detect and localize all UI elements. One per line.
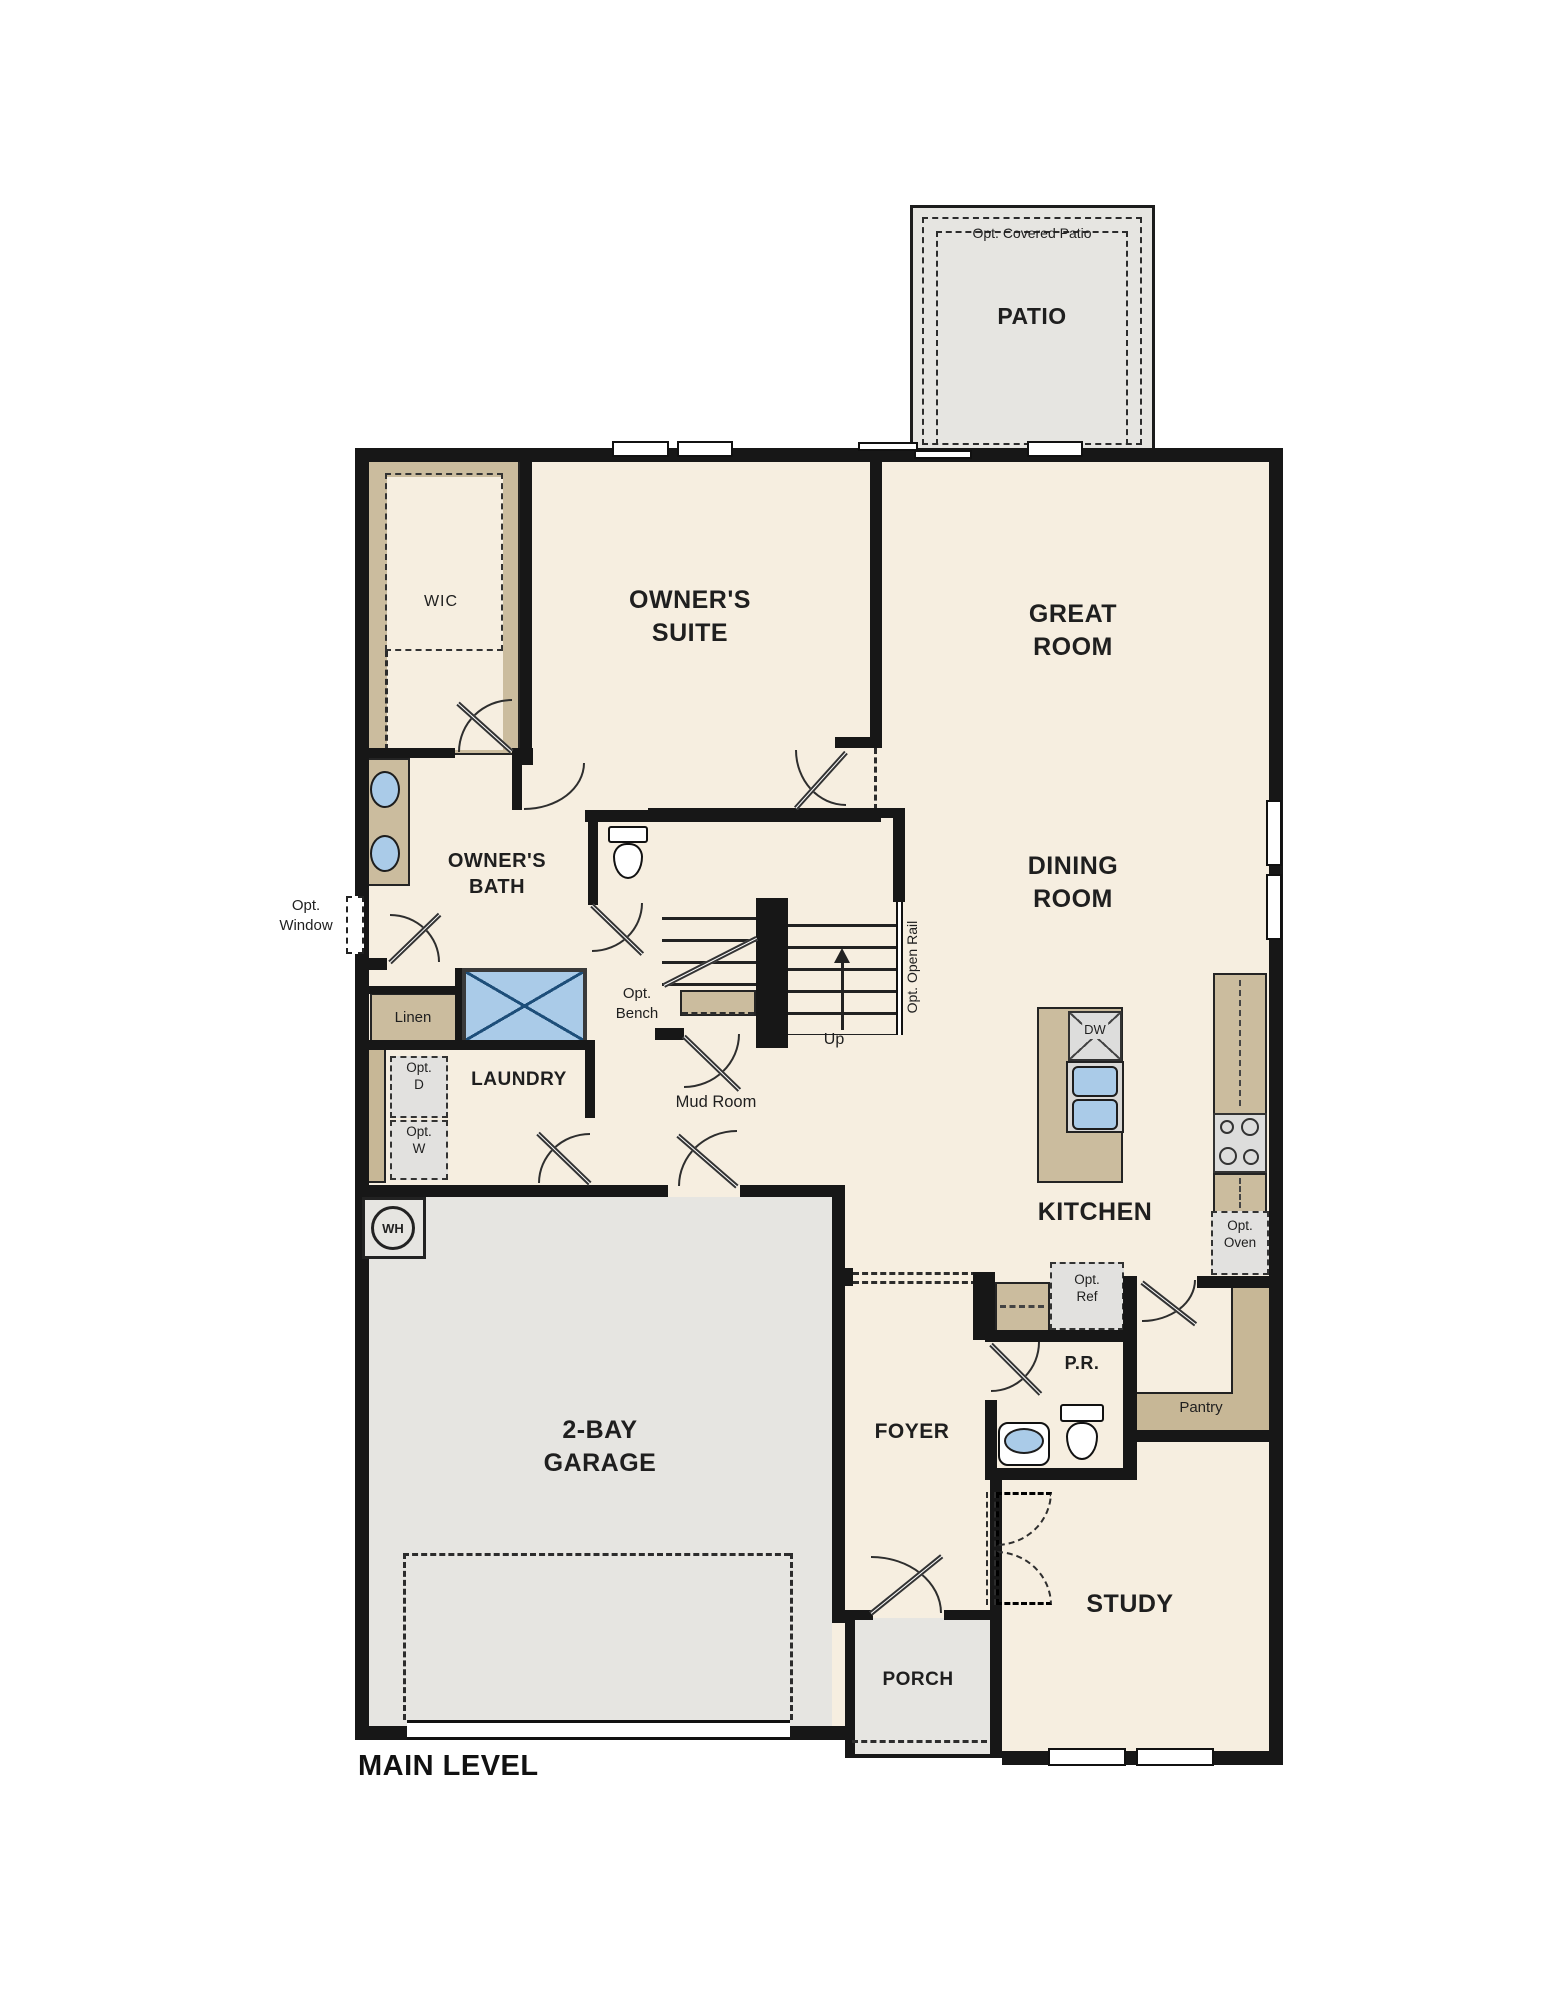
opt-dryer-label: Opt. D (406, 1060, 432, 1094)
dining-room-line1: DINING (1028, 852, 1119, 880)
wall (520, 455, 532, 755)
owners-bath-line1: OWNER'S (448, 850, 546, 872)
wall (1123, 1276, 1137, 1480)
stair-up-arrowhead (834, 948, 850, 963)
dw-label: DW (1082, 1022, 1108, 1039)
opt-w-line1: Opt. (406, 1124, 432, 1139)
pr-label: P.R. (1065, 1352, 1100, 1375)
owners-suite-label: OWNER'S SUITE (629, 584, 751, 649)
study-label: STUDY (1086, 1588, 1173, 1621)
porch-dashed-line (852, 1740, 987, 1743)
island-sink-icon (1072, 1099, 1118, 1130)
window (612, 441, 669, 457)
wic-label: WIC (424, 592, 458, 613)
opt-french-door-dashed (986, 1492, 988, 1605)
patio-dashed-outline-inner (936, 231, 1128, 445)
wall (756, 898, 788, 1048)
opt-washer-label: Opt. W (406, 1124, 432, 1158)
pantry-shelf (1231, 1288, 1269, 1394)
window (1136, 1748, 1214, 1766)
garage-door-track-dashed (403, 1553, 406, 1720)
opt-ref-line1: Opt. (1074, 1272, 1100, 1287)
wall (355, 448, 1283, 462)
laundry-label: LAUNDRY (471, 1068, 567, 1093)
wall (893, 808, 905, 902)
toilet-icon (608, 826, 648, 843)
opt-window-box (346, 896, 364, 954)
pantry-label: Pantry (1179, 1398, 1222, 1418)
main-level-title: MAIN LEVEL (358, 1750, 539, 1783)
wall (355, 448, 369, 1740)
wall (835, 737, 882, 748)
stair-up-arrow (841, 962, 844, 1030)
opt-bench-line2: Bench (616, 1005, 659, 1022)
opt-ref-line2: Ref (1076, 1289, 1097, 1304)
opt-w-line2: W (413, 1141, 426, 1156)
cased-opening-dashed (853, 1272, 977, 1275)
owners-suite-line2: SUITE (652, 619, 728, 647)
owners-suite-line1: OWNER'S (629, 586, 751, 614)
floor-plan-page: WH Opt. Covered Patio PATIO OWNER'S SUIT… (0, 0, 1545, 2000)
window (1266, 874, 1282, 940)
wall (588, 820, 598, 905)
cased-opening-dashed (853, 1281, 977, 1284)
opt-bench-line1: Opt. (623, 985, 651, 1002)
wall (512, 748, 522, 810)
wall (655, 1028, 684, 1040)
dining-room-label: DINING ROOM (1028, 850, 1119, 915)
foyer-label: FOYER (875, 1418, 950, 1445)
wall (1123, 1430, 1269, 1442)
wall (585, 1040, 595, 1118)
wall (648, 808, 905, 818)
great-room-line1: GREAT (1029, 600, 1117, 628)
linen-label: Linen (395, 1008, 432, 1028)
wall (1197, 1276, 1269, 1288)
wall (985, 1330, 997, 1342)
wall (362, 958, 387, 970)
burner-icon (1220, 1120, 1234, 1134)
opt-window-label: Opt. Window (279, 896, 332, 935)
opt-oven-label: Opt. Oven (1224, 1218, 1256, 1252)
sliding-door (914, 450, 972, 459)
garage-door (407, 1720, 790, 1740)
opt-oven-line2: Oven (1224, 1235, 1256, 1250)
wall (944, 1610, 990, 1620)
vanity-sink-icon (370, 835, 400, 872)
pr-sink-icon (1004, 1428, 1044, 1454)
patio-label: PATIO (997, 302, 1066, 332)
great-room-line2: ROOM (1033, 633, 1113, 661)
opt-d-line2: D (414, 1077, 424, 1092)
shower-icon (462, 968, 587, 1044)
wall (362, 748, 455, 758)
opt-open-rail-label: Opt. Open Rail (903, 921, 921, 1014)
garage-door-track-dashed (790, 1553, 793, 1720)
great-room-label: GREAT ROOM (1029, 598, 1117, 663)
wall (1269, 448, 1283, 1765)
porch-label: PORCH (882, 1668, 953, 1693)
wall (845, 1610, 855, 1758)
garage-line2: GARAGE (544, 1449, 657, 1477)
sliding-door (858, 442, 918, 451)
opt-window-line1: Opt. (292, 897, 320, 914)
up-label: Up (824, 1030, 844, 1051)
opt-covered-patio-label: Opt. Covered Patio (972, 224, 1091, 242)
wh-label: WH (382, 1221, 404, 1236)
wall (362, 1040, 595, 1050)
wall (832, 1268, 853, 1286)
kitchen-counter-dash (1239, 980, 1241, 1106)
window (677, 441, 733, 457)
owners-bath-line2: BATH (469, 876, 525, 898)
porch-edge (845, 1754, 995, 1758)
wall (832, 1197, 845, 1623)
wic-rod-dashed (385, 473, 503, 651)
garage-label: 2-BAY GARAGE (544, 1414, 657, 1479)
wall (740, 1185, 845, 1197)
opt-d-line1: Opt. (406, 1060, 432, 1075)
wall (870, 448, 882, 737)
vanity-sink-icon (370, 771, 400, 808)
burner-icon (1219, 1147, 1237, 1165)
bench-dashed-line (682, 1012, 754, 1015)
garage-line1: 2-BAY (562, 1416, 637, 1444)
opt-oven-line1: Opt. (1227, 1218, 1253, 1233)
wall (362, 1185, 668, 1197)
window (1027, 441, 1083, 457)
cooktop-icon (1213, 1113, 1267, 1173)
window (1048, 1748, 1126, 1766)
kitchen-counter-dash (1239, 1178, 1241, 1208)
wic-rod-dashed-left (385, 651, 388, 750)
water-heater-icon: WH (371, 1206, 415, 1250)
opt-window-line2: Window (279, 917, 332, 934)
wall (985, 1468, 1137, 1480)
opt-ref-label: Opt. Ref (1074, 1272, 1100, 1306)
burner-icon (1243, 1149, 1259, 1165)
toilet-icon (1060, 1404, 1104, 1422)
suite-opening-dashed (874, 748, 877, 810)
dining-room-line2: ROOM (1033, 885, 1113, 913)
window (1266, 800, 1282, 866)
opt-bench-label: Opt. Bench (616, 984, 659, 1023)
ref-counter-dash (1000, 1305, 1044, 1308)
island-sink-icon (1072, 1066, 1118, 1097)
garage-door-track-dashed (403, 1553, 790, 1556)
kitchen-label: KITCHEN (1038, 1196, 1153, 1229)
mud-room-label: Mud Room (676, 1092, 757, 1113)
wall (362, 986, 458, 994)
wall (995, 1330, 1123, 1342)
burner-icon (1241, 1118, 1259, 1136)
owners-bath-label: OWNER'S BATH (448, 848, 546, 900)
